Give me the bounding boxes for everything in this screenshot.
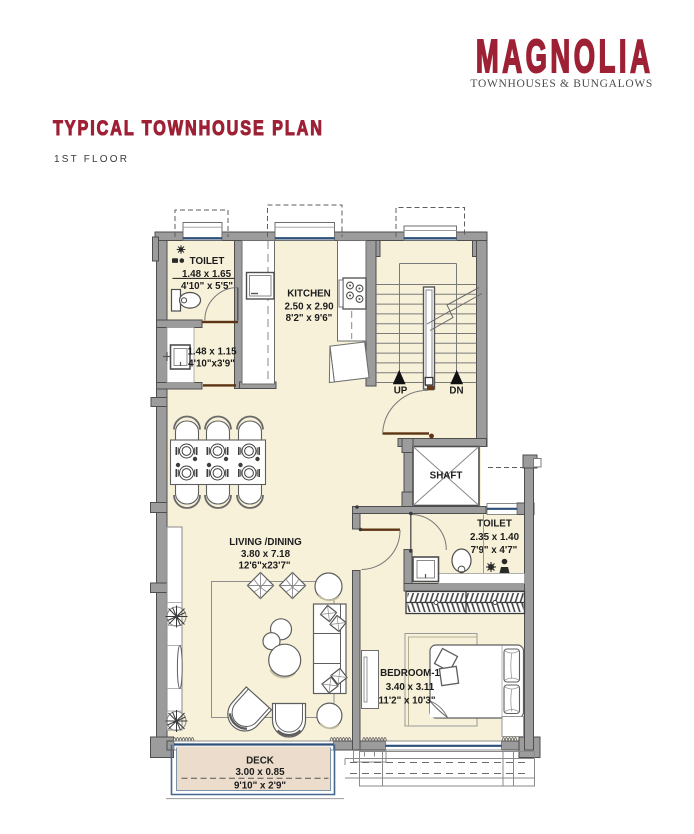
svg-text:9'10" x 2'9": 9'10" x 2'9" [234, 781, 286, 792]
svg-text:4'10" x 5'5": 4'10" x 5'5" [181, 281, 233, 292]
svg-text:TOILET: TOILET [190, 256, 225, 267]
svg-text:1.48 x 1.15: 1.48 x 1.15 [187, 347, 237, 358]
svg-text:11'2" x 10'3": 11'2" x 10'3" [379, 695, 436, 706]
svg-text:3.00 x 0.85: 3.00 x 0.85 [235, 767, 285, 778]
svg-text:SHAFT: SHAFT [430, 470, 463, 481]
svg-text:TOILET: TOILET [477, 519, 512, 530]
svg-text:LIVING /DINING: LIVING /DINING [229, 537, 302, 548]
svg-text:UP: UP [394, 385, 408, 396]
svg-text:BEDROOM-1: BEDROOM-1 [380, 668, 440, 679]
svg-text:12'6"x23'7": 12'6"x23'7" [238, 561, 290, 572]
svg-text:2.50 x 2.90: 2.50 x 2.90 [284, 302, 334, 313]
svg-text:7'9" x 4'7": 7'9" x 4'7" [471, 545, 518, 556]
svg-text:KITCHEN: KITCHEN [287, 288, 331, 299]
svg-text:DECK: DECK [246, 756, 274, 767]
svg-text:3.80 x 7.18: 3.80 x 7.18 [241, 549, 291, 560]
svg-text:8'2" x 9'6": 8'2" x 9'6" [286, 313, 333, 324]
svg-text:4'10"x3'9": 4'10"x3'9" [188, 359, 235, 370]
svg-text:DN: DN [449, 385, 463, 396]
svg-text:3.40 x 3.11: 3.40 x 3.11 [386, 682, 435, 693]
svg-text:2.35 x 1.40: 2.35 x 1.40 [470, 532, 520, 543]
